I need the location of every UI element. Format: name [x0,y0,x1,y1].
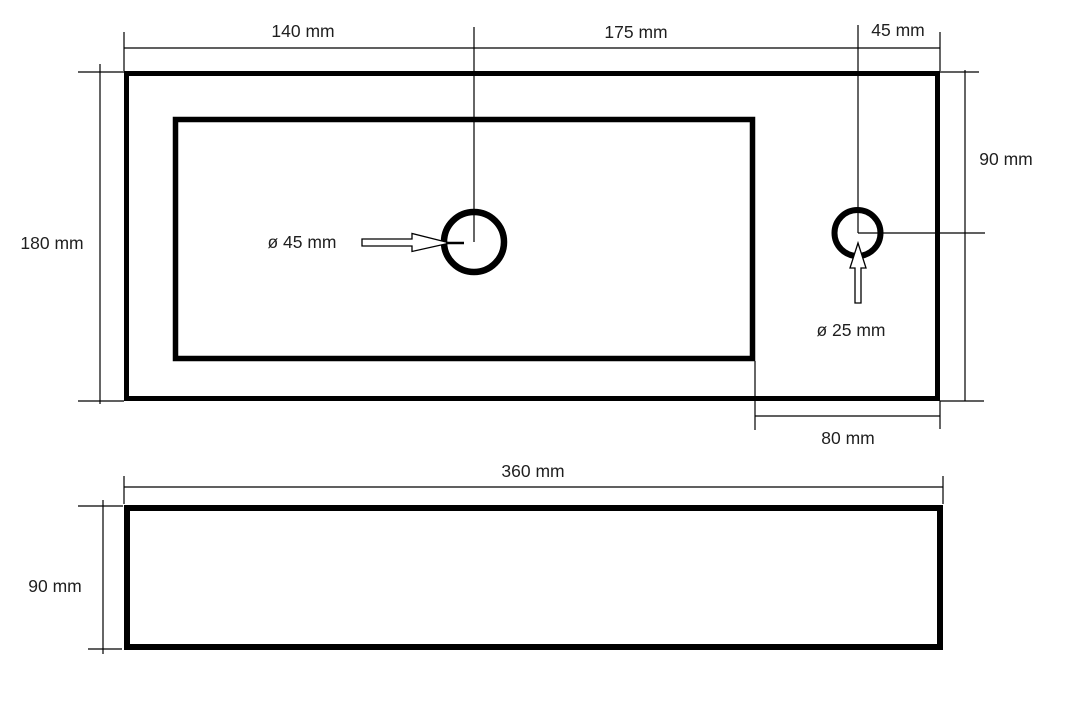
top-view-dimension-lines [78,25,985,430]
technical-drawing-svg: 140 mm 175 mm 45 mm 180 mm 90 mm 80 mm ø… [0,0,1088,720]
basin-inner-outline [176,120,753,359]
label-height-left: 180 mm [20,233,83,253]
label-offset-bottom-right: 80 mm [821,428,874,448]
front-view [78,476,943,654]
label-width-right: 45 mm [871,20,924,40]
drain-leader-arrow [362,234,450,252]
label-front-width: 360 mm [501,461,564,481]
label-tap-diameter: ø 25 mm [816,320,885,340]
label-drain-diameter: ø 45 mm [267,232,336,252]
label-width-left: 140 mm [271,21,334,41]
label-height-right: 90 mm [979,149,1032,169]
leader-arrows [362,234,866,304]
label-width-middle: 175 mm [604,22,667,42]
top-view-outlines [127,74,938,399]
tap-leader-arrow [850,243,866,303]
label-front-height: 90 mm [28,576,81,596]
sink-outline-front-view [127,508,940,647]
drawing-canvas: 140 mm 175 mm 45 mm 180 mm 90 mm 80 mm ø… [0,0,1088,720]
